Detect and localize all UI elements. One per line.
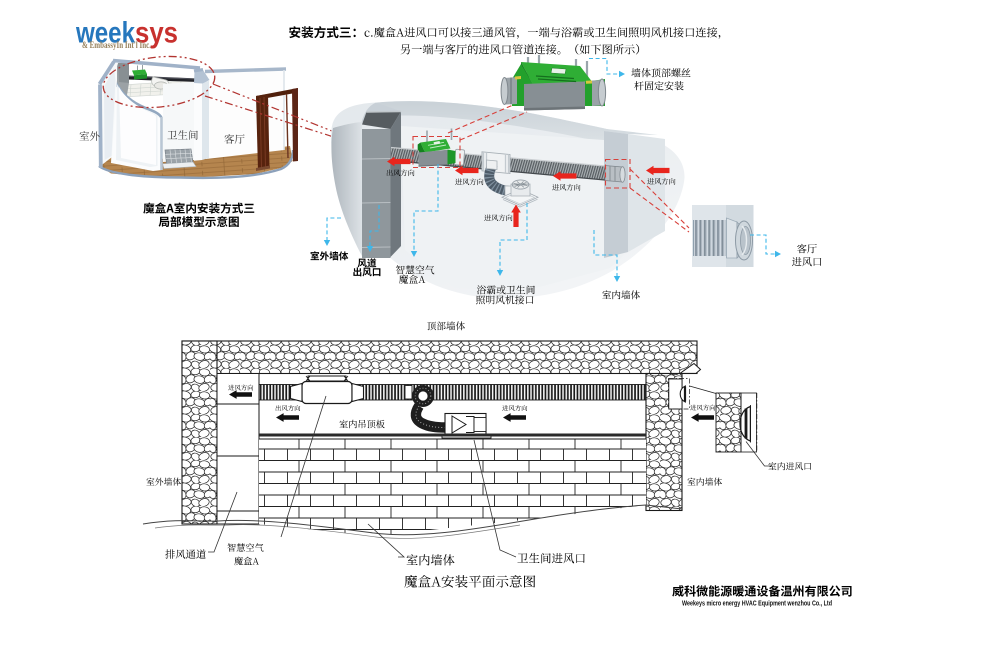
svg-text:& EmbassyIn Int'l Inc.: & EmbassyIn Int'l Inc. xyxy=(82,41,151,51)
svg-text:Weekeys micro energy HVAC Equi: Weekeys micro energy HVAC Equipment wenz… xyxy=(682,601,832,608)
